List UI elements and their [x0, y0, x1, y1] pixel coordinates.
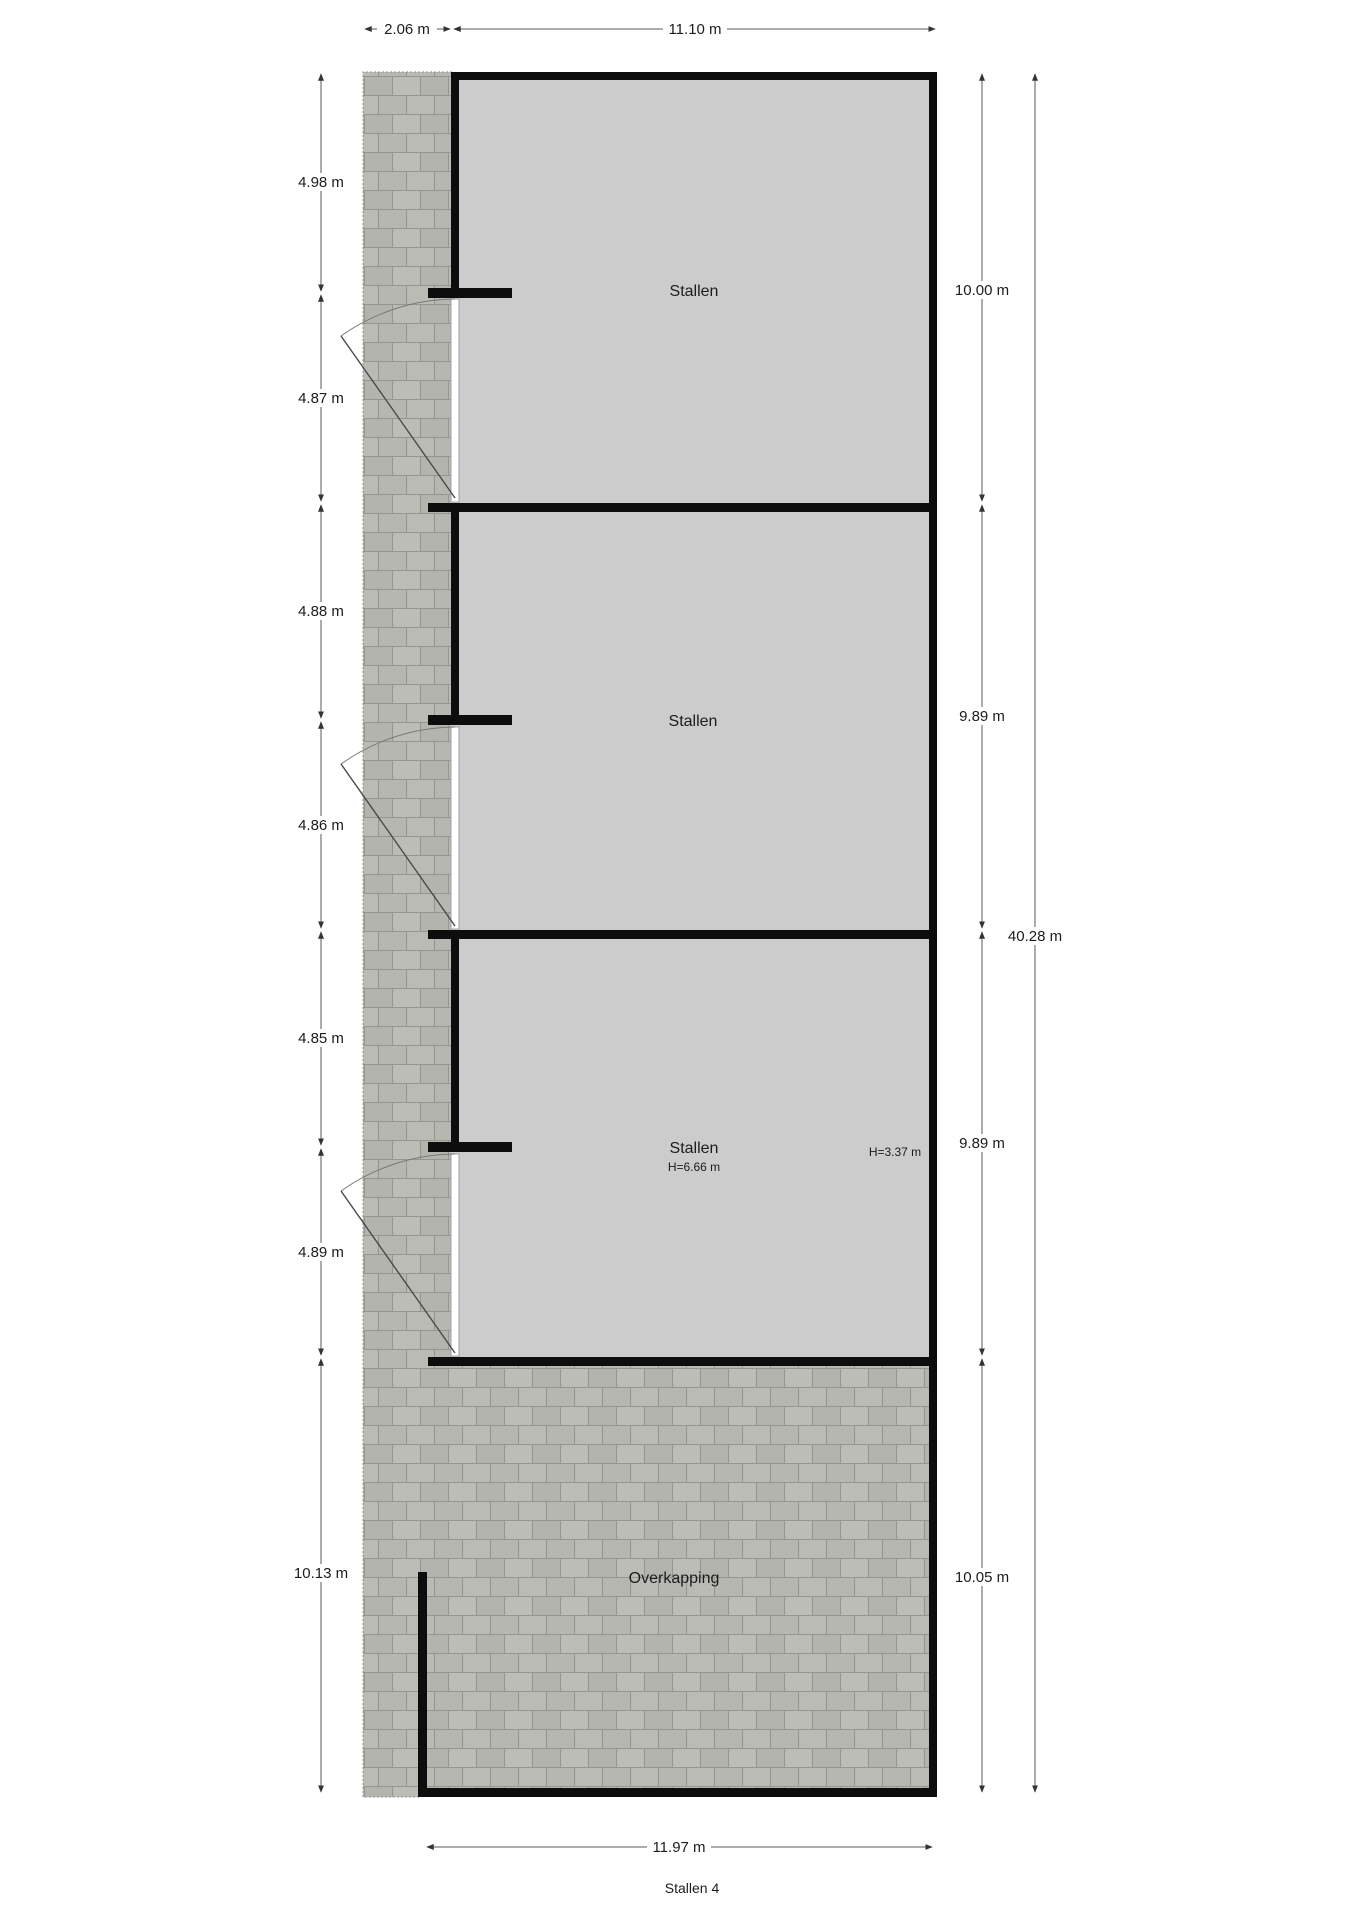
dim-top-1: 2.06 m: [384, 21, 430, 38]
wall-stallen-bottom: [428, 1357, 937, 1366]
dim-left-6: 4.89 m: [298, 1244, 344, 1261]
dim-left-3: 4.88 m: [298, 603, 344, 620]
dim-top-2: 11.10 m: [668, 21, 721, 38]
dim-left-7: 10.13 m: [294, 1565, 348, 1582]
floorplan-page: 2.06 m 11.10 m 4.98 m 4.87 m 4.88 m 4.86…: [0, 0, 1358, 1920]
room-label-overkapping: Overkapping: [629, 1570, 720, 1587]
floorplan-canvas: 2.06 m 11.10 m 4.98 m 4.87 m 4.88 m 4.86…: [0, 0, 1358, 1920]
wall-stub-1: [428, 288, 512, 298]
dim-bottom: 11.97 m: [652, 1839, 705, 1856]
room-label-stallen-2: Stallen: [669, 713, 718, 730]
wall-bottom: [418, 1788, 937, 1797]
wall-overkapping-left: [418, 1572, 427, 1797]
room-ceiling-height-stallen-3: H=6.66 m: [668, 1160, 720, 1174]
door-opening-2: [451, 727, 459, 929]
dim-right-2: 9.89 m: [959, 708, 1005, 725]
door-opening-3: [451, 1154, 459, 1356]
door-opening-1: [451, 299, 459, 502]
dim-left-2: 4.87 m: [298, 390, 344, 407]
dim-right-4: 10.05 m: [955, 1569, 1009, 1586]
wall-divider-1: [428, 503, 937, 512]
wall-divider-2: [428, 930, 937, 939]
drawing-title: Stallen 4: [665, 1880, 720, 1896]
wall-left-segment-1: [451, 72, 459, 298]
dim-right-1: 10.00 m: [955, 282, 1009, 299]
wall-left-segment-2: [451, 512, 459, 715]
wall-stub-3: [428, 1142, 512, 1152]
dim-left-4: 4.86 m: [298, 817, 344, 834]
wall-left-segment-3: [451, 939, 459, 1142]
room-label-stallen-1: Stallen: [670, 283, 719, 300]
dim-overall: 40.28 m: [1008, 928, 1062, 945]
dim-left-5: 4.85 m: [298, 1030, 344, 1047]
ceiling-height-right: H=3.37 m: [869, 1145, 921, 1159]
dim-right-3: 9.89 m: [959, 1135, 1005, 1152]
room-label-stallen-3: Stallen: [670, 1140, 719, 1157]
wall-stub-2: [428, 715, 512, 725]
wall-top: [451, 72, 937, 80]
dim-left-1: 4.98 m: [298, 174, 344, 191]
